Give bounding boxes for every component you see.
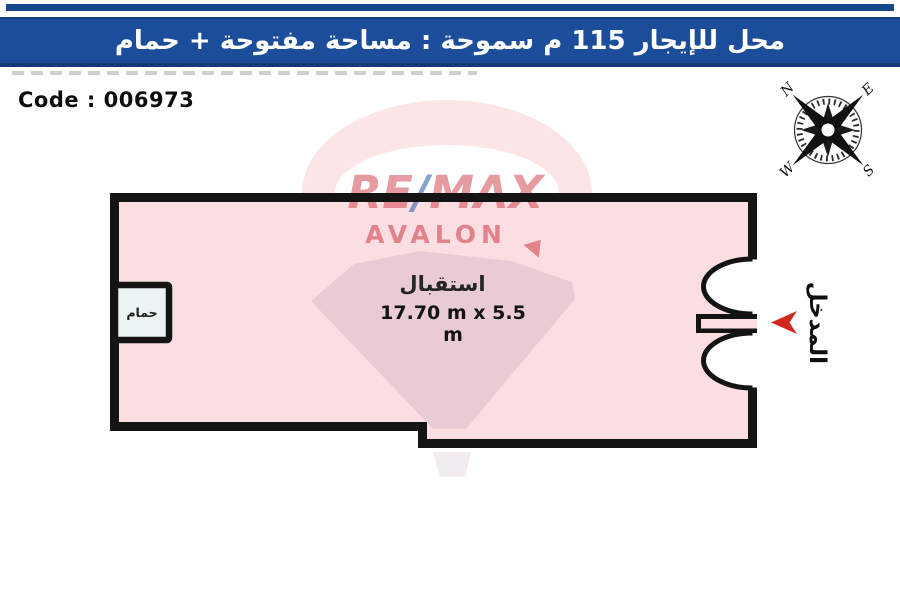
- entrance-label: المدخل: [804, 290, 830, 364]
- reception-label: استقبال: [380, 272, 505, 296]
- labels-layer: استقبال 17.70 m x 5.5 m حمام المدخل: [0, 0, 900, 599]
- room-dimensions: 17.70 m x 5.5 m: [374, 302, 532, 346]
- bathroom-label: حمام: [115, 305, 169, 320]
